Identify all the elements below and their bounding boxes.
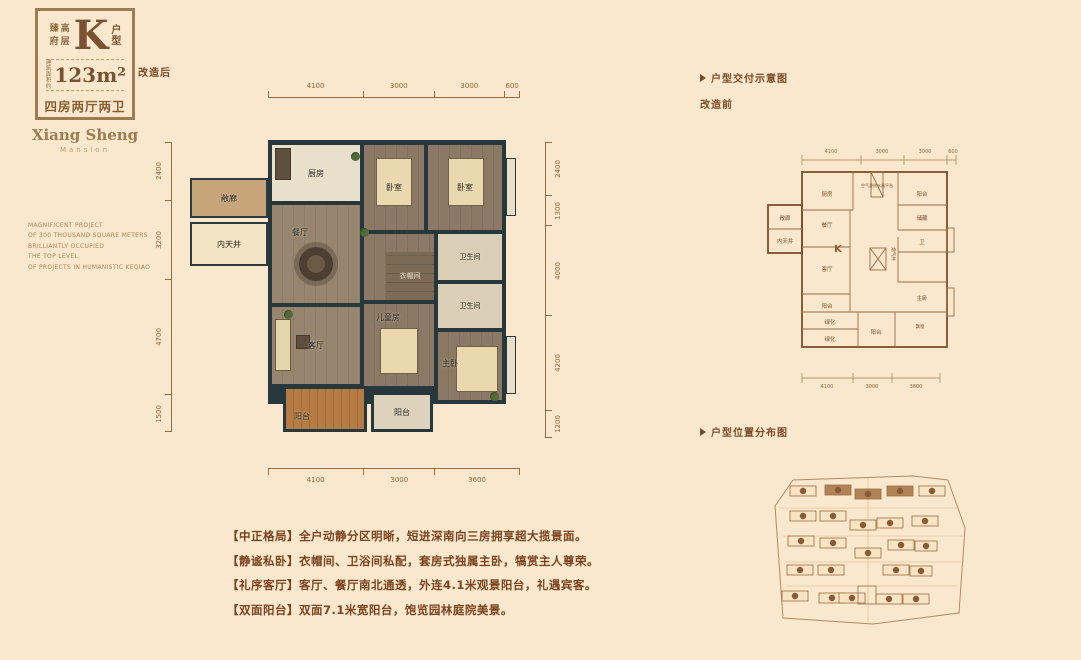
feature-tag: 【双面阳台】 xyxy=(227,603,299,617)
dim-value: 4100 xyxy=(821,384,834,390)
dim-value: 3000 xyxy=(919,149,932,155)
room-label: 阳台 xyxy=(294,411,310,422)
delivery-diagram-title: 户型交付示意图 xyxy=(700,70,788,85)
delivery-room-label-gallery: 敞廊 xyxy=(779,214,791,222)
area-label: 建筑 面积约 xyxy=(44,60,51,90)
rooms-summary: 四房两厅两卫 xyxy=(44,92,126,115)
room-label: 阳台 xyxy=(394,407,410,418)
room-master: 主卧 xyxy=(438,332,502,400)
page: 臻 府 高 层 K 户 型 建筑 面积约 123m² 四房两厅两卫 Xiang … xyxy=(0,0,1081,660)
divider xyxy=(46,90,124,91)
dim-value: 3000 xyxy=(364,82,434,90)
unit-badge: 臻 府 高 层 K 户 型 建筑 面积约 123m² 四房两厅两卫 xyxy=(35,8,135,120)
delivery-unit-mark: K xyxy=(834,244,843,255)
delivery-room-label-green-b: 绿化 xyxy=(824,335,836,343)
delivery-room-label-bay: 飘窗 xyxy=(916,323,925,330)
dim-value: 3200 xyxy=(155,231,163,249)
dim-value: 3000 xyxy=(435,82,505,90)
room-dining: 餐厅 xyxy=(272,205,360,303)
bay-window xyxy=(506,336,516,394)
feature-text: 衣帽间、卫浴间私配，套房式独属主卧，犒赏主人尊荣。 xyxy=(299,554,599,568)
bay-window xyxy=(506,158,516,216)
counter xyxy=(275,148,291,180)
dim-chain-left: 2400 3200 4700 1500 xyxy=(156,142,172,432)
series-char: 府 xyxy=(49,36,60,49)
dim-value: 600 xyxy=(505,82,519,90)
room-label: 餐厅 xyxy=(292,227,308,238)
room-bedroom-a: 卧室 xyxy=(364,145,424,230)
delivery-room-label-kitchen: 厨房 xyxy=(821,190,833,198)
delivery-room-label-balcony-n: 阳台 xyxy=(916,190,928,198)
plant-icon xyxy=(284,310,293,319)
dim-value: 1200 xyxy=(554,416,562,434)
room-label: 卫生间 xyxy=(460,301,481,311)
dim-value: 1300 xyxy=(554,202,562,220)
delivery-room-label-storage: 储藏 xyxy=(916,214,928,222)
room-bedroom-b: 卧室 xyxy=(428,145,502,230)
room-label: 厨房 xyxy=(308,168,324,179)
delivery-plan-drawing: 4100 3000 3000 600 4100 3000 3600 xyxy=(750,142,970,392)
brand-name: Xiang Sheng xyxy=(25,126,145,144)
room-living: 客厅 xyxy=(272,307,360,384)
sofa xyxy=(275,319,291,371)
series-char: 臻 xyxy=(49,23,60,36)
feature-line: 【礼序客厅】客厅、餐厅南北通透，外连4.1米观景阳台，礼遇宾客。 xyxy=(227,577,807,593)
dim-value: 3000 xyxy=(876,149,889,155)
main-floor-plan: 敞廊 内天井 厨房 卧室 卧室 餐厅 卫生间 衣帽间 卫生间 xyxy=(188,140,533,440)
delivery-room-label-bath: 卫 xyxy=(919,239,925,246)
room-kids: 儿童房 xyxy=(364,304,434,386)
dim-value: 4100 xyxy=(268,82,363,90)
dim-chain-top: 4100 3000 3000 600 xyxy=(268,82,520,98)
bed xyxy=(380,328,418,374)
badge-area-row: 建筑 面积约 123m² xyxy=(44,61,126,89)
dim-value: 4700 xyxy=(155,328,163,346)
room-label: 主卧 xyxy=(442,358,458,369)
room-label: 卧室 xyxy=(386,182,402,193)
unit-suffix-vertical: 户 型 xyxy=(111,25,121,47)
room-gallery: 敞廊 xyxy=(190,178,268,218)
divider xyxy=(46,59,124,60)
plant-icon xyxy=(351,152,360,161)
series-char: 层 xyxy=(60,36,71,49)
unit-letter: K xyxy=(74,14,109,58)
room-balcony-small: 阳台 xyxy=(371,392,433,432)
delivery-room-label-courtyard: 内天井 xyxy=(777,237,794,245)
room-cloakroom: 衣帽间 xyxy=(386,252,434,300)
location-map-title: 户型位置分布图 xyxy=(700,424,788,439)
delivery-room-label-balcony-s: 阳台 xyxy=(870,328,882,336)
delivery-room-label-vent: 烟气井 xyxy=(890,247,897,261)
dim-value: 600 xyxy=(948,149,958,155)
feature-list: 【中正格局】全户动静分区明晰，短进深南向三房拥享超大揽景面。 【静谧私卧】衣帽间… xyxy=(227,528,807,626)
feature-line: 【中正格局】全户动静分区明晰，短进深南向三房拥享超大揽景面。 xyxy=(227,528,807,544)
dim-value: 3000 xyxy=(866,384,879,390)
plant-icon xyxy=(360,228,369,237)
room-label: 客厅 xyxy=(308,340,324,351)
room-bath-a: 卫生间 xyxy=(438,234,502,280)
area-value: 123m² xyxy=(54,63,126,87)
feature-tag: 【中正格局】 xyxy=(227,529,299,543)
dim-value: 4100 xyxy=(825,149,838,155)
dim-value: 2400 xyxy=(155,163,163,181)
delivery-room-label-master: 主卧 xyxy=(916,294,928,302)
feature-tag: 【静谧私卧】 xyxy=(227,554,299,568)
triangle-bullet-icon xyxy=(700,428,706,436)
dim-value: 1500 xyxy=(155,405,163,423)
delivery-room-label-balcony-w: 阳台 xyxy=(821,302,833,310)
room-label: 衣帽间 xyxy=(400,271,421,281)
delivery-room-label-heater: 空气源热水器平台 xyxy=(861,182,893,188)
brand-subtitle: Mansion xyxy=(25,146,145,154)
dim-value: 3000 xyxy=(364,476,434,484)
feature-line: 【双面阳台】双面7.1米宽阳台，饱览园林庭院美景。 xyxy=(227,602,807,618)
dim-value: 4100 xyxy=(268,476,363,484)
room-label: 卫生间 xyxy=(460,252,481,262)
dim-value: 2400 xyxy=(554,160,562,178)
room-label: 内天井 xyxy=(217,239,241,250)
room-kitchen: 厨房 xyxy=(272,145,360,201)
series-vertical-text: 臻 府 高 层 xyxy=(49,23,71,49)
brand-logo: Xiang Sheng Mansion xyxy=(25,126,145,154)
feature-text: 双面7.1米宽阳台，饱览园林庭院美景。 xyxy=(299,603,513,617)
room-label: 儿童房 xyxy=(376,312,400,323)
delivery-room-label-living: 客厅 xyxy=(821,265,833,273)
delivery-room-label-green-a: 绿化 xyxy=(824,318,836,326)
room-label: 敞廊 xyxy=(221,193,237,204)
feature-line: 【静谧私卧】衣帽间、卫浴间私配，套房式独属主卧，犒赏主人尊荣。 xyxy=(227,553,807,569)
before-renovation-label: 改造前 xyxy=(700,96,733,111)
feature-text: 客厅、餐厅南北通透，外连4.1米观景阳台，礼遇宾客。 xyxy=(299,578,597,592)
dim-value: 4000 xyxy=(554,262,562,280)
room-bath-b: 卫生间 xyxy=(438,284,502,328)
bed xyxy=(456,346,498,392)
plant-icon xyxy=(490,392,499,401)
dining-table xyxy=(299,247,333,281)
dim-chain-right: 2400 1300 4000 4200 1200 xyxy=(545,142,561,438)
dim-value: 3600 xyxy=(435,476,519,484)
after-renovation-label: 改造后 xyxy=(138,64,171,79)
room-balcony-main: 阳台 xyxy=(283,386,367,432)
feature-text: 全户动静分区明晰，短进深南向三房拥享超大揽景面。 xyxy=(299,529,587,543)
dim-value: 4200 xyxy=(554,355,562,373)
triangle-bullet-icon xyxy=(700,74,706,82)
series-char: 高 xyxy=(60,23,71,36)
delivery-room-label-dining: 餐厅 xyxy=(821,221,833,229)
dim-chain-bottom: 4100 3000 3600 xyxy=(268,468,520,484)
badge-unit-row: 臻 府 高 层 K 户 型 xyxy=(44,13,126,58)
room-label: 卧室 xyxy=(457,182,473,193)
room-courtyard: 内天井 xyxy=(190,222,268,266)
feature-tag: 【礼序客厅】 xyxy=(227,578,299,592)
dim-value: 3600 xyxy=(910,384,923,390)
